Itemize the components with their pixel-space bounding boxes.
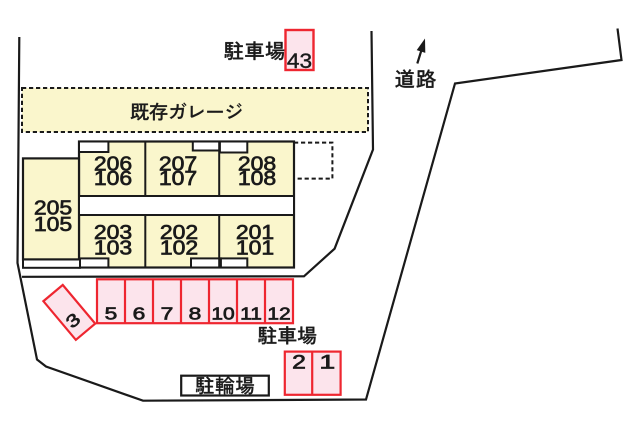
svg-text:43: 43 [287, 49, 312, 73]
svg-text:101: 101 [236, 236, 274, 259]
svg-text:11: 11 [240, 305, 262, 324]
svg-text:106: 106 [94, 166, 132, 189]
svg-text:10: 10 [211, 305, 234, 324]
svg-text:105: 105 [34, 212, 72, 235]
svg-text:7: 7 [161, 305, 174, 324]
svg-text:8: 8 [189, 305, 202, 324]
svg-text:108: 108 [238, 166, 276, 189]
svg-text:2: 2 [292, 351, 306, 373]
svg-text:102: 102 [160, 236, 198, 259]
svg-text:12: 12 [267, 305, 290, 324]
svg-text:5: 5 [105, 305, 118, 324]
svg-text:6: 6 [133, 305, 146, 324]
svg-text:107: 107 [159, 166, 197, 189]
svg-text:103: 103 [94, 236, 132, 259]
svg-text:1: 1 [319, 352, 335, 373]
